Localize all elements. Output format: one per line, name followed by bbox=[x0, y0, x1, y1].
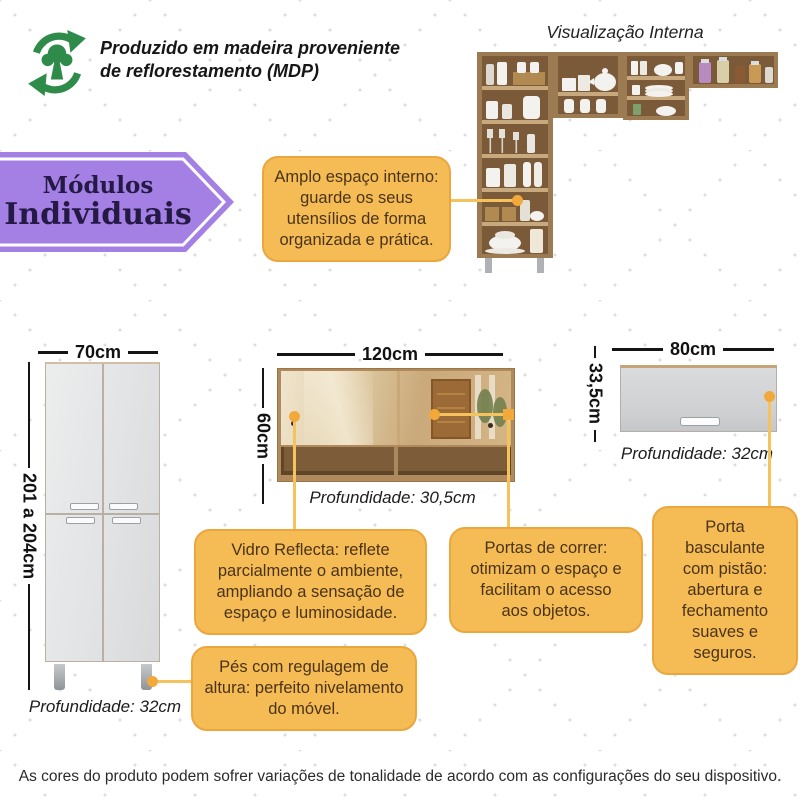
color-disclaimer: As cores do produto podem sofrer variaçõ… bbox=[0, 768, 800, 786]
connector-portas-line-h bbox=[439, 413, 509, 416]
dim-flip-width-label: 80cm bbox=[670, 339, 716, 360]
callout-pes-regulagem: Pés com regulagem de altura: perfeito ni… bbox=[191, 646, 417, 731]
eco-badge-text: Produzido em madeira proveniente de refl… bbox=[100, 37, 420, 84]
connector-basculante-dot bbox=[764, 391, 775, 402]
connector-vidro-line bbox=[293, 420, 296, 530]
kitchen-set-illustration bbox=[475, 50, 780, 278]
connector-pes-dot bbox=[147, 676, 158, 687]
dim-flip-width: 80cm bbox=[612, 339, 774, 360]
dim-flip-height-label: 33,5cm bbox=[585, 363, 606, 424]
connector-basculante-line bbox=[768, 400, 771, 507]
tall-cabinet-handle bbox=[109, 503, 138, 510]
tall-cabinet-diagram bbox=[45, 362, 160, 662]
internal-upper-unit-b bbox=[623, 52, 689, 120]
dim-sliding-height-label: 60cm bbox=[253, 413, 274, 459]
sliding-glass-cabinet-diagram bbox=[277, 368, 515, 482]
connector-portas-elbow bbox=[503, 409, 514, 420]
sliding-door-handle bbox=[488, 423, 493, 428]
callout-vidro-reflecta: Vidro Reflecta: reflete parcialmente o a… bbox=[194, 529, 427, 635]
connector-portas-line-v bbox=[507, 418, 510, 528]
flip-door-handle bbox=[680, 417, 720, 426]
tall-cabinet-leg bbox=[54, 664, 65, 690]
tall-cabinet-handle bbox=[66, 517, 95, 524]
connector-portas-dot bbox=[429, 409, 440, 420]
reflected-plant bbox=[477, 389, 493, 423]
connector-amplo-line bbox=[449, 199, 513, 202]
internal-upper-unit-c bbox=[689, 52, 778, 88]
internal-tall-unit bbox=[477, 52, 553, 273]
tall-cabinet-handle bbox=[70, 503, 99, 510]
dim-tall-height: 201 a 204cm bbox=[15, 362, 43, 690]
dim-flip-height: 33,5cm bbox=[581, 346, 609, 442]
open-shelf bbox=[281, 447, 511, 477]
tall-depth-label: Profundidade: 32cm bbox=[25, 697, 185, 717]
internal-view-title: Visualização Interna bbox=[500, 22, 750, 43]
callout-amplo-espaco: Amplo espaço interno: guarde os seus ute… bbox=[262, 156, 451, 262]
dim-sliding-width: 120cm bbox=[277, 344, 503, 365]
dim-sliding-width-label: 120cm bbox=[362, 344, 418, 365]
banner-text: Módulos Individuais bbox=[0, 152, 196, 252]
sliding-door-divider bbox=[397, 371, 400, 445]
tall-cabinet-door-split-h bbox=[46, 513, 159, 515]
infographic-page: Produzido em madeira proveniente de refl… bbox=[0, 0, 800, 800]
dim-tall-width-label: 70cm bbox=[75, 342, 121, 363]
reflecta-glass-doors bbox=[281, 371, 511, 445]
recycle-tree-icon bbox=[24, 28, 90, 98]
connector-vidro-dot bbox=[289, 411, 300, 422]
flip-door-cabinet-diagram bbox=[620, 365, 777, 432]
cabinet-bottom-edge bbox=[278, 475, 514, 481]
tall-cabinet-handle bbox=[112, 517, 141, 524]
callout-portas-de-correr: Portas de correr: otimizam o espaço e fa… bbox=[449, 527, 643, 633]
modules-banner: Módulos Individuais bbox=[0, 152, 240, 252]
internal-upper-unit-a bbox=[553, 52, 623, 118]
banner-line2: Individuais bbox=[4, 198, 192, 231]
open-shelf-divider bbox=[394, 447, 398, 477]
dim-tall-height-label: 201 a 204cm bbox=[19, 473, 40, 579]
glass-reflection-streak bbox=[304, 371, 373, 445]
flip-depth-label: Profundidade: 32cm bbox=[612, 444, 782, 464]
banner-line1: Módulos bbox=[43, 173, 154, 198]
sliding-depth-label: Profundidade: 30,5cm bbox=[295, 488, 490, 508]
connector-amplo-dot bbox=[512, 195, 523, 206]
dim-tall-width: 70cm bbox=[38, 342, 158, 363]
connector-pes-line bbox=[157, 680, 192, 683]
callout-porta-basculante: Porta basculante com pistão: abertura e … bbox=[652, 506, 798, 675]
dim-sliding-height: 60cm bbox=[249, 368, 277, 504]
